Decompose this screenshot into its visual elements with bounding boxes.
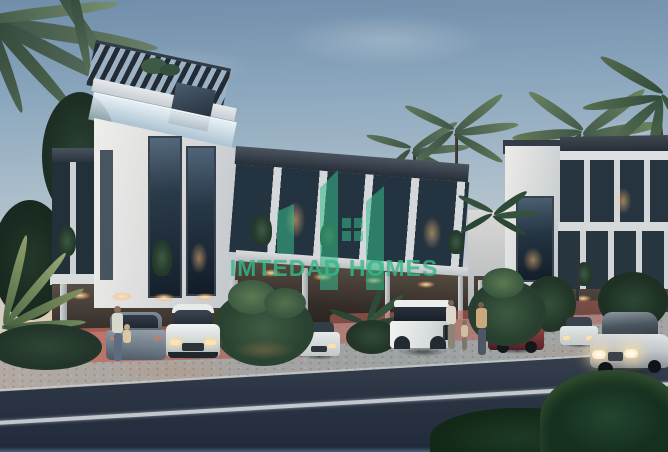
grille — [608, 352, 623, 361]
person-woman-with-child — [108, 306, 136, 370]
headlight — [170, 340, 181, 345]
wheel — [648, 360, 661, 373]
fender — [394, 336, 410, 349]
roof-plants — [160, 64, 180, 76]
fascia-right — [560, 151, 668, 160]
headlight — [563, 336, 570, 340]
person-family-group — [446, 300, 496, 360]
palm-tree-between-blocks — [470, 185, 540, 255]
headlight — [624, 349, 638, 358]
headlight — [205, 340, 216, 345]
slab-right — [558, 222, 668, 231]
car-silver-suv-driving — [590, 310, 668, 376]
listing-photo: IMTEDAD HOMES — [0, 0, 668, 452]
tail-light — [154, 337, 162, 340]
grille — [182, 343, 204, 351]
headlight — [328, 344, 336, 348]
tower-window-narrow — [100, 150, 113, 280]
headlight — [592, 350, 606, 359]
cloud — [250, 5, 520, 75]
bush — [214, 280, 314, 366]
car-white-suv — [164, 302, 222, 360]
palm-bush-left — [0, 262, 120, 367]
window-band — [394, 307, 450, 322]
car-white-jeep — [390, 298, 454, 356]
